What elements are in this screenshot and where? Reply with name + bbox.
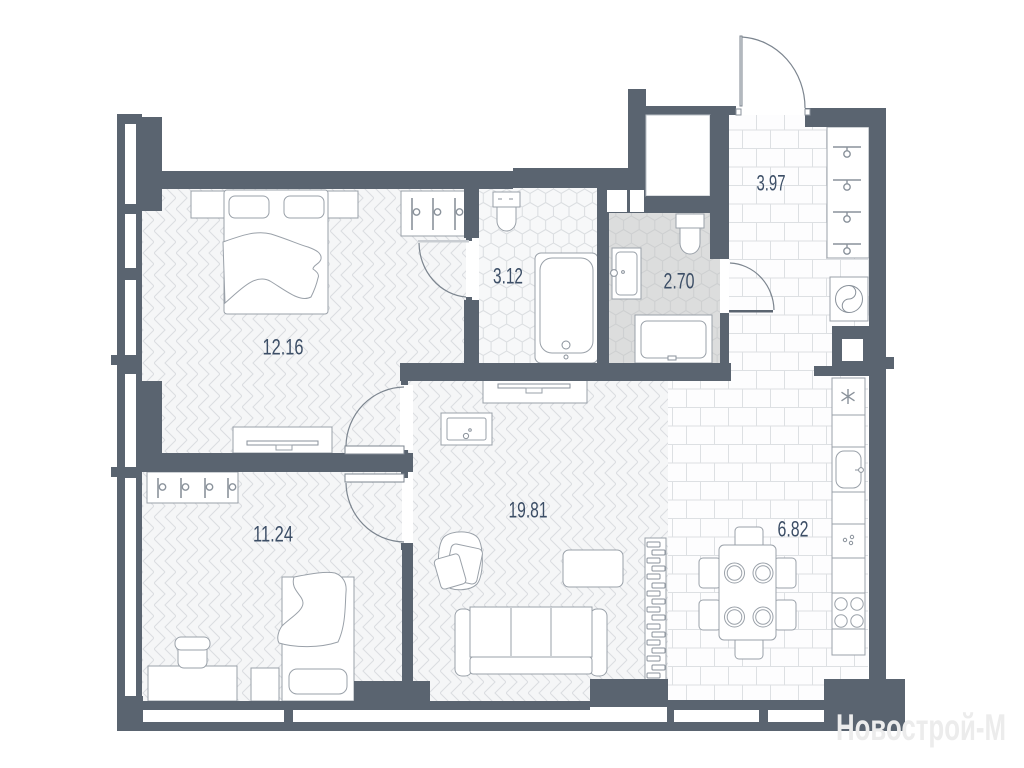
svg-text:12.16: 12.16 xyxy=(263,335,304,360)
svg-text:2.70: 2.70 xyxy=(664,269,695,294)
svg-text:6.82: 6.82 xyxy=(778,517,809,542)
svg-text:3.12: 3.12 xyxy=(493,264,523,289)
svg-text:Новострой-М: Новострой-М xyxy=(836,707,1006,748)
svg-text:11.24: 11.24 xyxy=(253,522,293,547)
svg-text:19.81: 19.81 xyxy=(509,498,548,523)
svg-text:3.97: 3.97 xyxy=(757,171,786,196)
